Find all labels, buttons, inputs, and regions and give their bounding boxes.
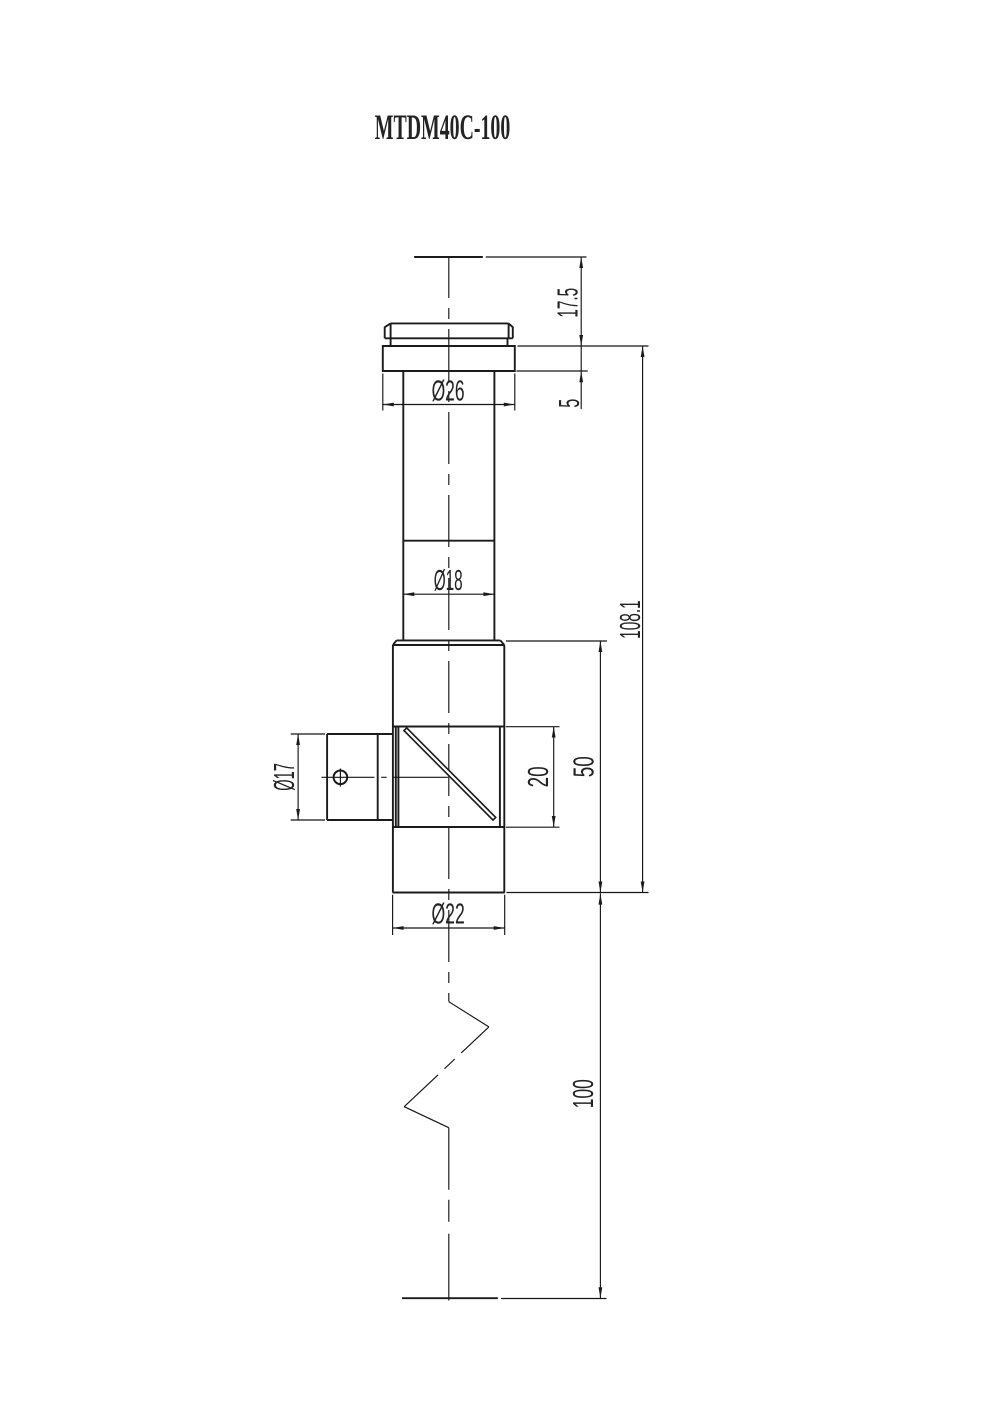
svg-text:MTDM40C-100: MTDM40C-100: [375, 107, 511, 147]
svg-text:5: 5: [554, 399, 586, 408]
svg-text:Ø22: Ø22: [431, 899, 464, 931]
svg-text:100: 100: [568, 1079, 600, 1108]
svg-text:Ø26: Ø26: [432, 376, 465, 408]
svg-text:Ø18: Ø18: [434, 565, 463, 597]
svg-text:Ø17: Ø17: [269, 763, 301, 791]
svg-text:50: 50: [569, 756, 601, 777]
svg-text:17.5: 17.5: [552, 288, 584, 318]
svg-text:108.1: 108.1: [615, 600, 647, 639]
svg-text:20: 20: [523, 766, 555, 787]
